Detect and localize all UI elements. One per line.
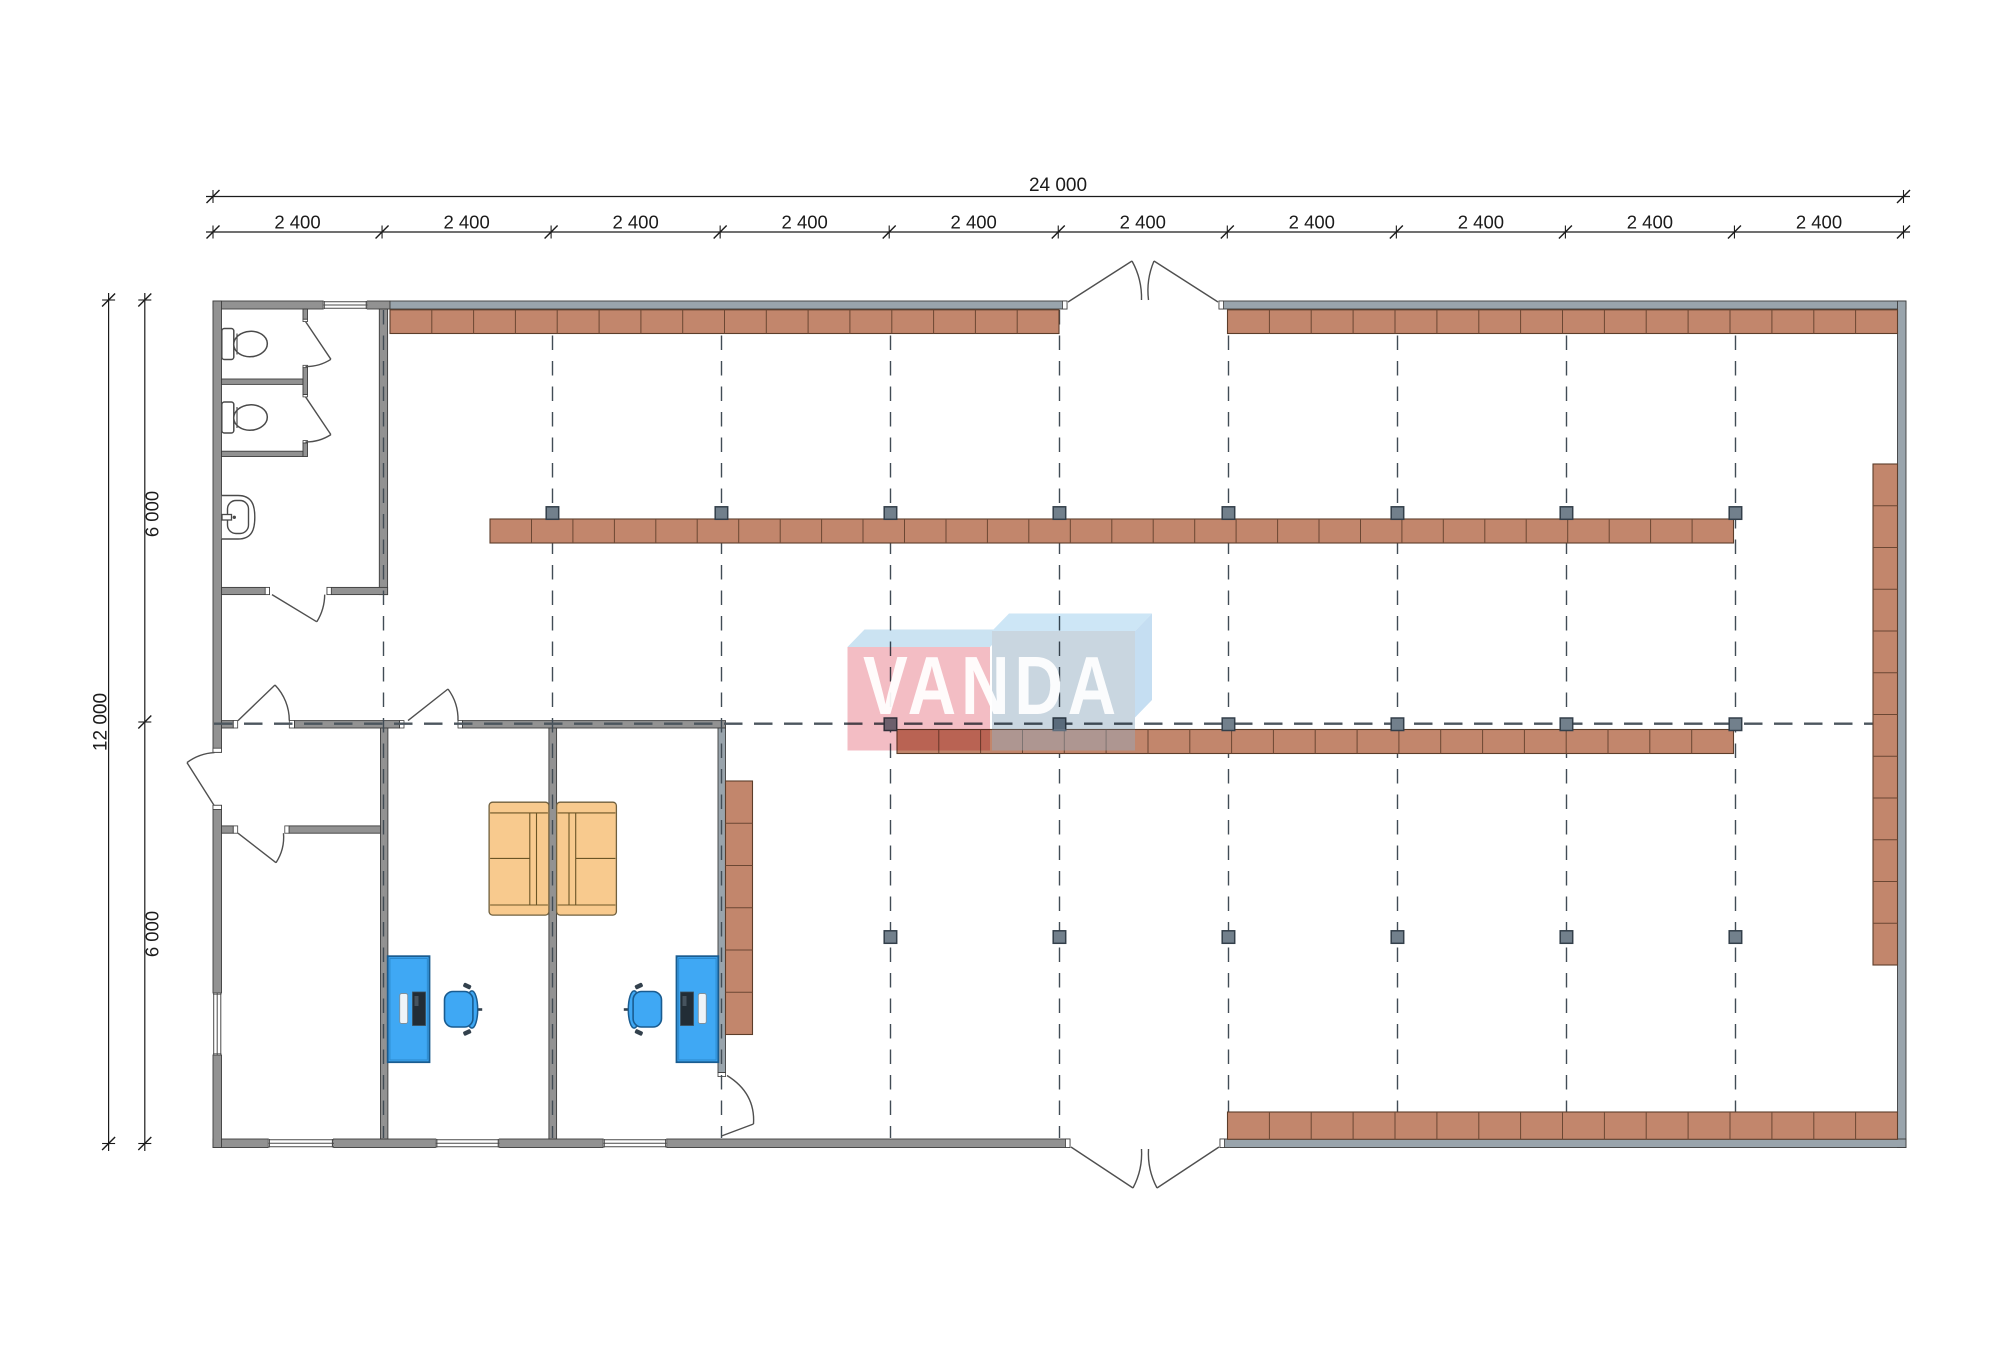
svg-text:2 400: 2 400: [951, 212, 997, 233]
svg-text:24 000: 24 000: [1029, 175, 1087, 196]
svg-text:2 400: 2 400: [612, 212, 658, 233]
svg-text:12 000: 12 000: [91, 693, 112, 751]
svg-text:2 400: 2 400: [274, 212, 320, 233]
svg-text:6 000: 6 000: [142, 491, 163, 537]
svg-text:2 400: 2 400: [1120, 212, 1166, 233]
svg-text:2 400: 2 400: [1796, 212, 1842, 233]
svg-text:2 400: 2 400: [1458, 212, 1504, 233]
svg-text:6 000: 6 000: [142, 911, 163, 957]
svg-text:2 400: 2 400: [782, 212, 828, 233]
svg-text:VANDA: VANDA: [863, 639, 1121, 732]
svg-text:2 400: 2 400: [443, 212, 489, 233]
svg-text:2 400: 2 400: [1627, 212, 1673, 233]
svg-text:2 400: 2 400: [1289, 212, 1335, 233]
